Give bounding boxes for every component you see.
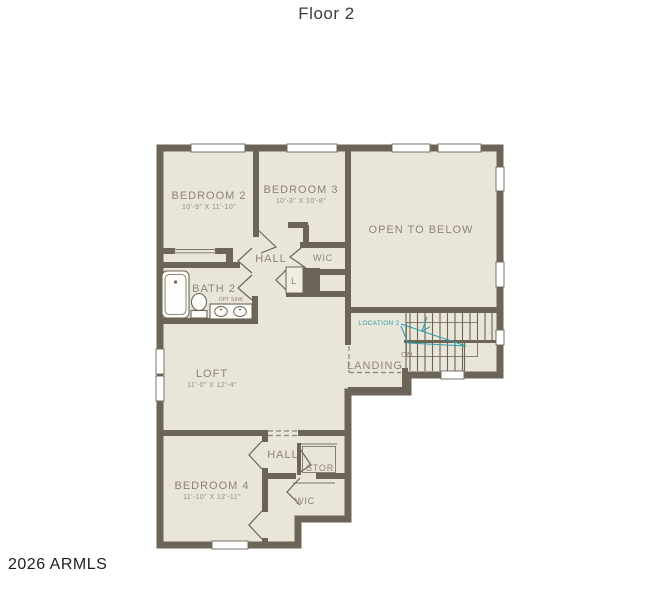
room-label-bath2: BATH 2: [192, 283, 236, 295]
bedroom2-opening: [175, 248, 215, 254]
room-label-wic-upper: WIC: [313, 253, 333, 263]
floor-plan-page: Floor 2: [0, 0, 653, 595]
room-label-wic-lower: WIC: [295, 496, 315, 506]
toilet-icon: [191, 294, 207, 319]
stairs-down-label: DN: [401, 350, 413, 359]
room-dims-loft: 11'-0" X 12'-4": [187, 382, 237, 389]
room-dims-bedroom3: 10'-3" X 10'-8": [276, 198, 326, 205]
room-label-open-to-below: OPEN TO BELOW: [369, 224, 474, 236]
room-label-storage: STOR: [306, 463, 334, 473]
room-label-bedroom4: BEDROOM 4: [174, 480, 249, 492]
stairs-location-label: LOCATION 2: [358, 320, 399, 327]
room-label-hall-lower: HALL: [267, 449, 299, 461]
watermark: 2026 ARMLS: [8, 556, 107, 574]
room-label-bedroom2: BEDROOM 2: [171, 190, 246, 202]
double-sink-icon: [210, 304, 252, 319]
room-label-linen: L: [291, 276, 297, 286]
floor-plan-svg: BEDROOM 2 10'-9" X 11'-10" BEDROOM 3 10'…: [0, 0, 653, 595]
room-dims-bedroom2: 10'-9" X 11'-10": [182, 204, 236, 211]
room-label-landing: LANDING: [347, 360, 403, 372]
room-label-loft: LOFT: [196, 368, 228, 380]
room-label-hall-upper: HALL: [255, 253, 287, 265]
room-dims-bedroom4: 11'-10" X 12'-11": [183, 494, 241, 501]
room-note-opt-sink: OPT SINK: [219, 297, 244, 303]
bathtub-icon: [162, 271, 189, 318]
room-label-bedroom3: BEDROOM 3: [263, 184, 338, 196]
